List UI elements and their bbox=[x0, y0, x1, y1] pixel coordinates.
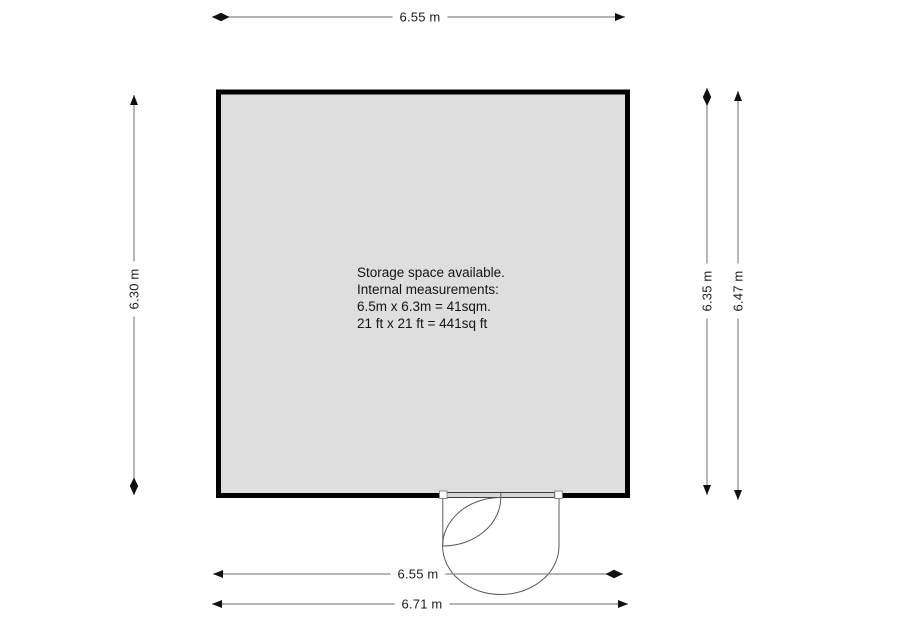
double-door-icon bbox=[440, 491, 563, 595]
dimension-label-top-width: 6.55 m bbox=[393, 9, 448, 26]
dimension-label-bottom-inner-width: 6.55 m bbox=[391, 566, 446, 583]
room-description-line: Internal measurements: bbox=[357, 281, 505, 298]
door-hinge-right bbox=[555, 491, 563, 499]
dimension-label-right-outer-height: 6.47 m bbox=[730, 264, 747, 319]
room-description-line: 6.5m x 6.3m = 41sqm. bbox=[357, 298, 505, 315]
door-hinge-left bbox=[440, 491, 448, 499]
room-description-line: Storage space available. bbox=[357, 264, 505, 281]
door-swing-arc-right bbox=[443, 498, 559, 595]
room-description-line: 21 ft x 21 ft = 441sq ft bbox=[357, 315, 505, 332]
dimension-label-bottom-outer-width: 6.71 m bbox=[395, 596, 450, 613]
door-swing-arc-left bbox=[443, 498, 501, 547]
dimension-label-right-inner-height: 6.35 m bbox=[699, 264, 716, 319]
floorplan-canvas: 6.55 m 6.30 m 6.35 m 6.47 m 6.55 m 6.71 … bbox=[0, 0, 917, 621]
room-description: Storage space available. Internal measur… bbox=[357, 264, 505, 332]
dimension-label-left-height: 6.30 m bbox=[126, 262, 143, 317]
